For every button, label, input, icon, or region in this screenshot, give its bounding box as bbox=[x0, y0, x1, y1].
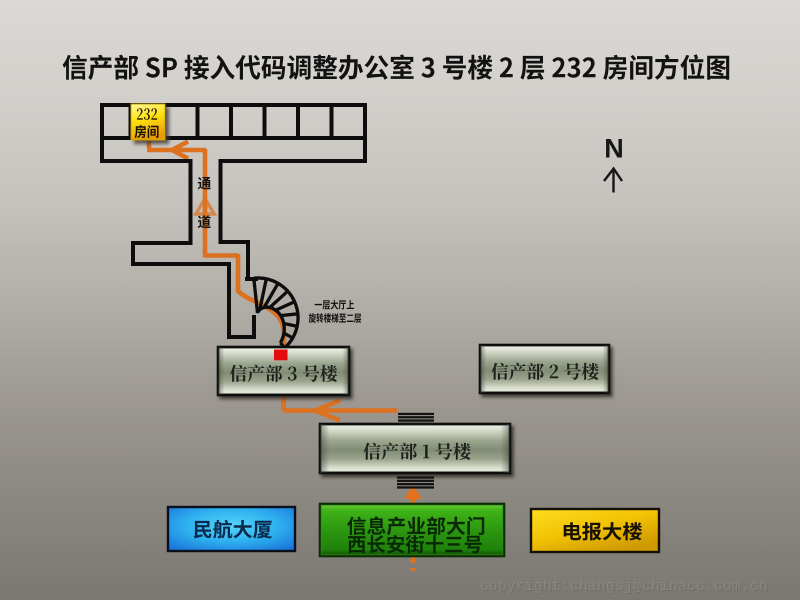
svg-text:copyright:changsj@chinacc.com.: copyright:changsj@chinacc.com.cn bbox=[480, 579, 768, 595]
svg-text:N: N bbox=[604, 134, 624, 164]
